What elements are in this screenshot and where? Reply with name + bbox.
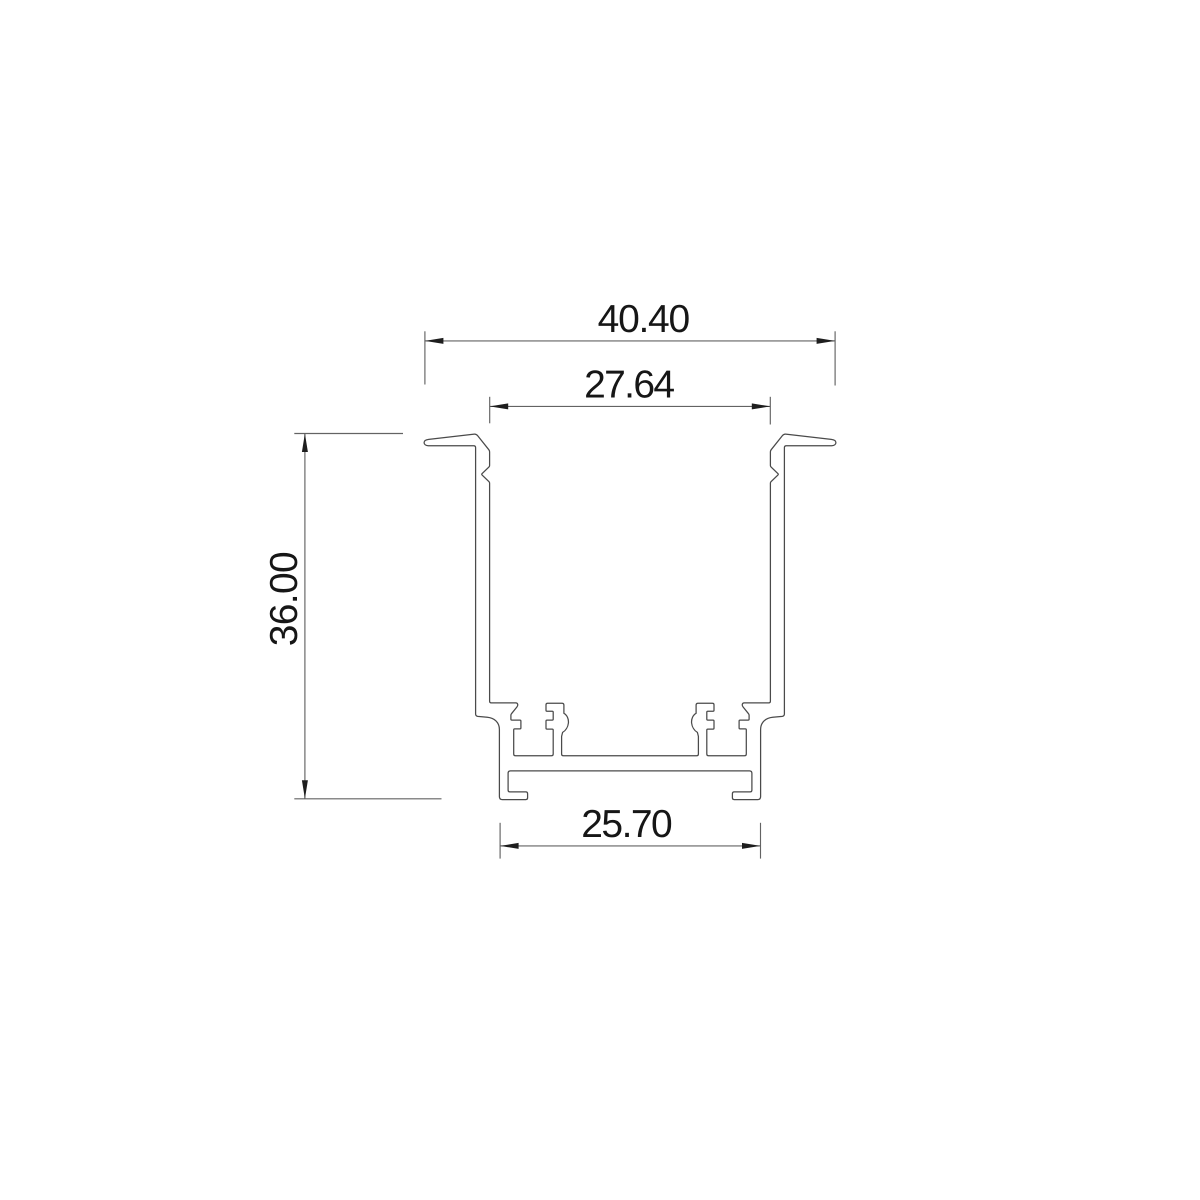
svg-text:27.64: 27.64 [584, 364, 675, 407]
svg-text:40.40: 40.40 [598, 298, 691, 341]
svg-text:36.00: 36.00 [263, 551, 306, 646]
svg-text:25.70: 25.70 [581, 803, 673, 846]
